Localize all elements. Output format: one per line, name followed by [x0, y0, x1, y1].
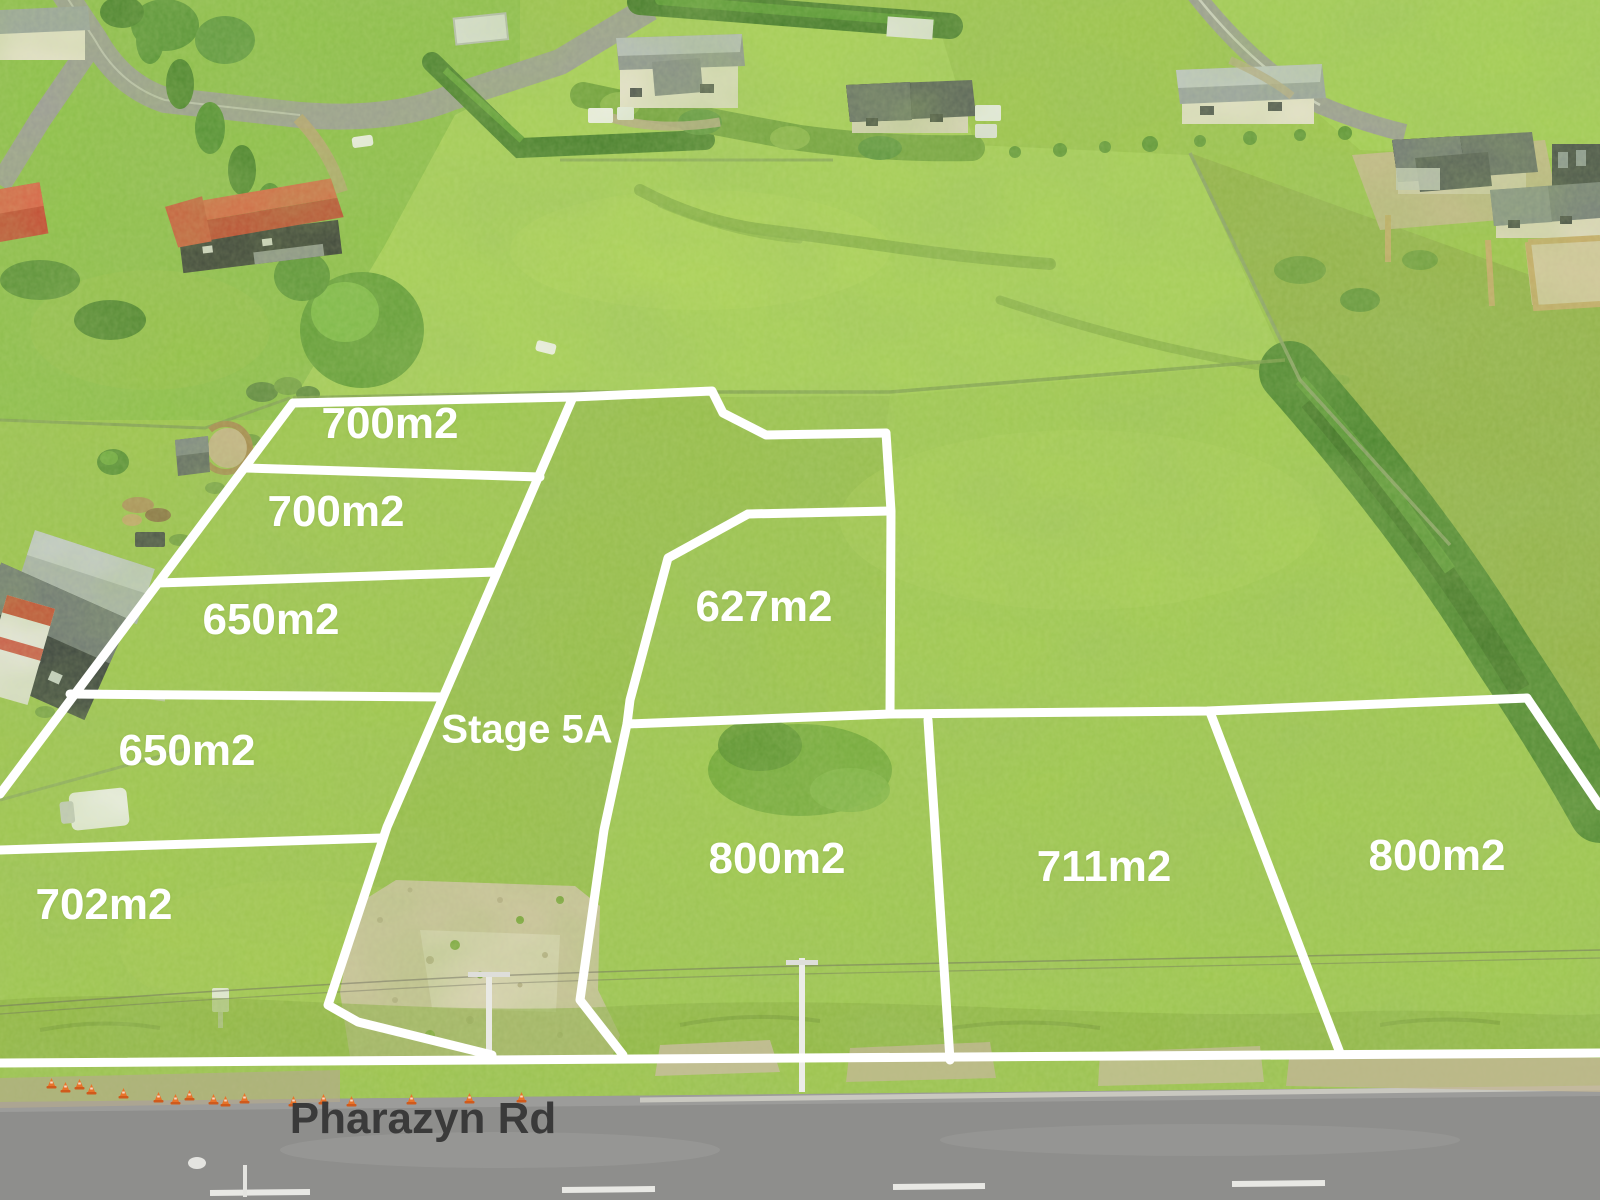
lot-area-label-1: 700m2: [321, 399, 458, 449]
lot-area-label-5: 702m2: [35, 880, 172, 930]
lot-area-label-8: 711m2: [1037, 842, 1172, 892]
lot-area-label-3: 650m2: [202, 595, 339, 645]
stage-label: Stage 5A: [441, 708, 612, 753]
lot-area-label-7: 800m2: [708, 834, 845, 884]
aerial-subdivision-photo: 700m2 700m2 650m2 650m2 702m2 627m2 800m…: [0, 0, 1600, 1200]
lot-area-label-6: 627m2: [695, 582, 832, 632]
lot-area-label-9: 800m2: [1368, 831, 1505, 881]
grass-grain-texture: [0, 0, 1600, 1105]
lot-area-label-2: 700m2: [267, 487, 404, 537]
road-name-label: Pharazyn Rd: [290, 1094, 557, 1144]
lot-area-label-4: 650m2: [118, 726, 255, 776]
